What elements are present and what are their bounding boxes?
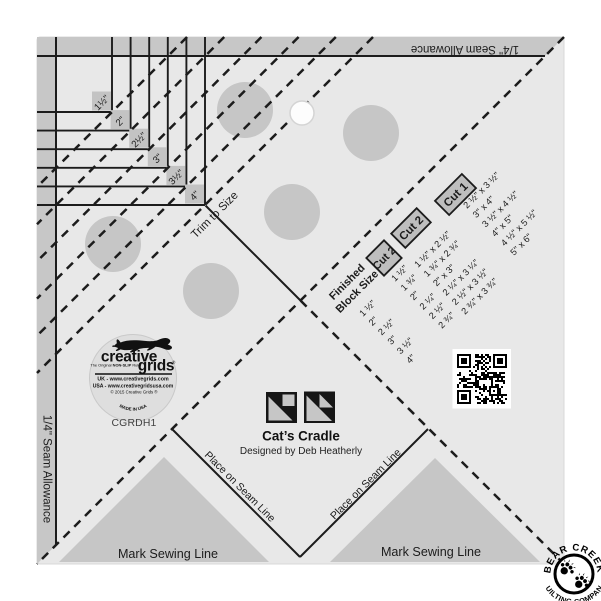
svg-text:1/4" Seam Allowance: 1/4" Seam Allowance bbox=[411, 43, 519, 55]
svg-text:Mark Sewing Line: Mark Sewing Line bbox=[118, 547, 218, 561]
svg-text:Mark Sewing Line: Mark Sewing Line bbox=[381, 545, 481, 559]
svg-text:© 2015 Creative Grids ®: © 2015 Creative Grids ® bbox=[111, 389, 159, 394]
svg-text:CGRDH1: CGRDH1 bbox=[111, 418, 156, 429]
svg-text:The Original NON-SLIP Ruler: The Original NON-SLIP Ruler bbox=[90, 363, 142, 368]
svg-text:grids: grids bbox=[138, 358, 174, 375]
svg-text:UK - www.creativegrids.com: UK - www.creativegrids.com bbox=[97, 377, 169, 383]
svg-text:1/4" Seam Allowance: 1/4" Seam Allowance bbox=[41, 415, 53, 523]
svg-text:Designed by Deb Heatherly: Designed by Deb Heatherly bbox=[240, 446, 362, 457]
svg-text:Cat’s Cradle: Cat’s Cradle bbox=[262, 429, 340, 444]
